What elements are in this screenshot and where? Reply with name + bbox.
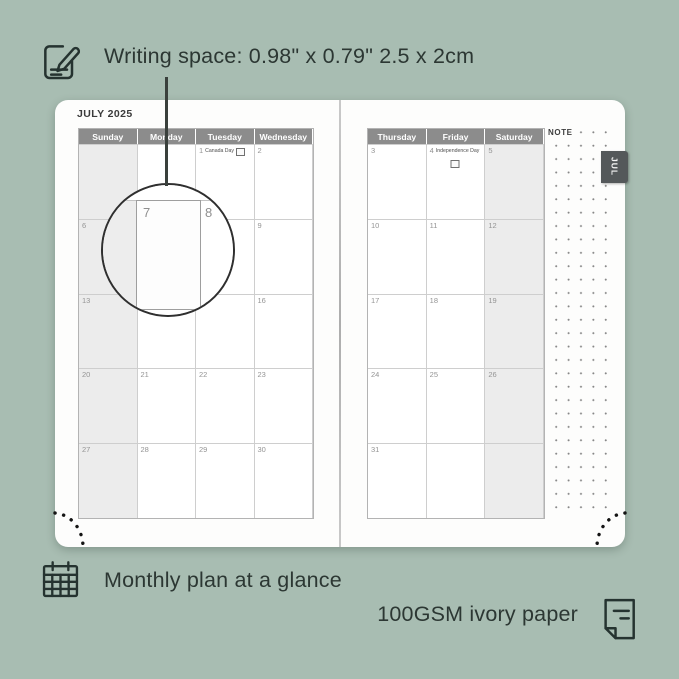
stitch-dots-bottom-left bbox=[53, 507, 87, 547]
day-number: 24 bbox=[371, 371, 379, 379]
calendar-cell: 19 bbox=[485, 294, 544, 369]
day-number: 6 bbox=[82, 222, 86, 230]
holiday-label: Independence Day bbox=[436, 148, 480, 154]
flag-icon bbox=[451, 160, 460, 168]
calendar-cell: 23 bbox=[255, 368, 314, 443]
month-title: JULY 2025 bbox=[77, 108, 133, 120]
day-number: 22 bbox=[199, 371, 207, 379]
calendar-cell bbox=[485, 443, 544, 518]
day-number: 17 bbox=[371, 297, 379, 305]
day-number: 27 bbox=[82, 446, 90, 454]
calendar-cell: 2 bbox=[255, 144, 314, 219]
day-number: 30 bbox=[258, 446, 266, 454]
paper-caption: 100GSM ivory paper bbox=[377, 602, 578, 627]
monthly-plan-caption: Monthly plan at a glance bbox=[104, 568, 342, 593]
calendar-cell: 4Independence Day bbox=[427, 144, 486, 219]
calendar-cell: 11 bbox=[427, 219, 486, 294]
calendar-cell: 18 bbox=[427, 294, 486, 369]
calendar-cell: 9 bbox=[255, 219, 314, 294]
stitch-dots-bottom-right bbox=[593, 507, 627, 547]
day-number: 13 bbox=[82, 297, 90, 305]
day-number: 18 bbox=[430, 297, 438, 305]
writing-space-caption: Writing space: 0.98" x 0.79" 2.5 x 2cm bbox=[104, 44, 474, 69]
day-number: 26 bbox=[488, 371, 496, 379]
day-number: 3 bbox=[371, 147, 375, 155]
calendar-cell: 28 bbox=[138, 443, 197, 518]
calendar-cell: 5 bbox=[485, 144, 544, 219]
day-number: 31 bbox=[371, 446, 379, 454]
day-number: 12 bbox=[488, 222, 496, 230]
calendar-cell: 26 bbox=[485, 368, 544, 443]
note-label: NOTE bbox=[548, 128, 576, 138]
day-number: 11 bbox=[430, 222, 438, 230]
calendar-cell: 31 bbox=[368, 443, 427, 518]
holiday-label: Canada Day bbox=[205, 148, 234, 154]
calendar-cell: 20 bbox=[79, 368, 138, 443]
day-number: 19 bbox=[488, 297, 496, 305]
day-number: 16 bbox=[258, 297, 266, 305]
day-header: Saturday bbox=[485, 129, 544, 144]
day-header: Sunday bbox=[79, 129, 138, 144]
magnified-next-day-number: 8 bbox=[205, 205, 212, 220]
day-header: Thursday bbox=[368, 129, 427, 144]
flag-icon bbox=[236, 148, 245, 156]
writing-notepad-icon bbox=[37, 34, 87, 87]
calendar-cell bbox=[427, 443, 486, 518]
calendar-cell: 3 bbox=[368, 144, 427, 219]
day-number: 5 bbox=[488, 147, 492, 155]
day-number: 4 bbox=[430, 147, 434, 155]
day-number: 23 bbox=[258, 371, 266, 379]
day-number: 20 bbox=[82, 371, 90, 379]
day-number: 10 bbox=[371, 222, 379, 230]
notebook-spine bbox=[339, 100, 341, 547]
day-number: 25 bbox=[430, 371, 438, 379]
calendar-cell: 27 bbox=[79, 443, 138, 518]
day-number: 2 bbox=[258, 147, 262, 155]
magnified-day-number: 7 bbox=[143, 205, 150, 220]
calendar-cell: 29 bbox=[196, 443, 255, 518]
callout-pointer-line bbox=[165, 77, 168, 186]
day-number: 28 bbox=[141, 446, 149, 454]
calendar-cell: 10 bbox=[368, 219, 427, 294]
day-number: 21 bbox=[141, 371, 149, 379]
day-header: Wednesday bbox=[255, 129, 314, 144]
calendar-cell: 30 bbox=[255, 443, 314, 518]
day-header: Tuesday bbox=[196, 129, 255, 144]
month-tab-label: JUL bbox=[610, 157, 620, 176]
calendar-cell: 21 bbox=[138, 368, 197, 443]
magnifier-lens: 7 8 bbox=[101, 183, 235, 317]
magnified-cell-view: 7 8 bbox=[103, 185, 233, 315]
magnified-sunday-shade bbox=[103, 200, 136, 315]
calendar-cell: 24 bbox=[368, 368, 427, 443]
calendar-icon bbox=[36, 556, 85, 603]
day-number: 1 bbox=[199, 147, 203, 155]
day-number: 9 bbox=[258, 222, 262, 230]
calendar-cell: 22 bbox=[196, 368, 255, 443]
calendar-cell: 16 bbox=[255, 294, 314, 369]
day-number: 29 bbox=[199, 446, 207, 454]
calendar-right-page: ThursdayFridaySaturday34Independence Day… bbox=[367, 128, 545, 519]
notes-dot-grid: NOTE bbox=[547, 128, 613, 517]
calendar-cell: 12 bbox=[485, 219, 544, 294]
month-tab-jul: JUL bbox=[601, 151, 628, 183]
calendar-cell: 17 bbox=[368, 294, 427, 369]
paper-sheet-icon bbox=[599, 595, 637, 645]
planner-notebook: JULY 2025 SundayMondayTuesdayWednesday1C… bbox=[55, 100, 625, 547]
day-header: Friday bbox=[427, 129, 486, 144]
calendar-cell: 25 bbox=[427, 368, 486, 443]
